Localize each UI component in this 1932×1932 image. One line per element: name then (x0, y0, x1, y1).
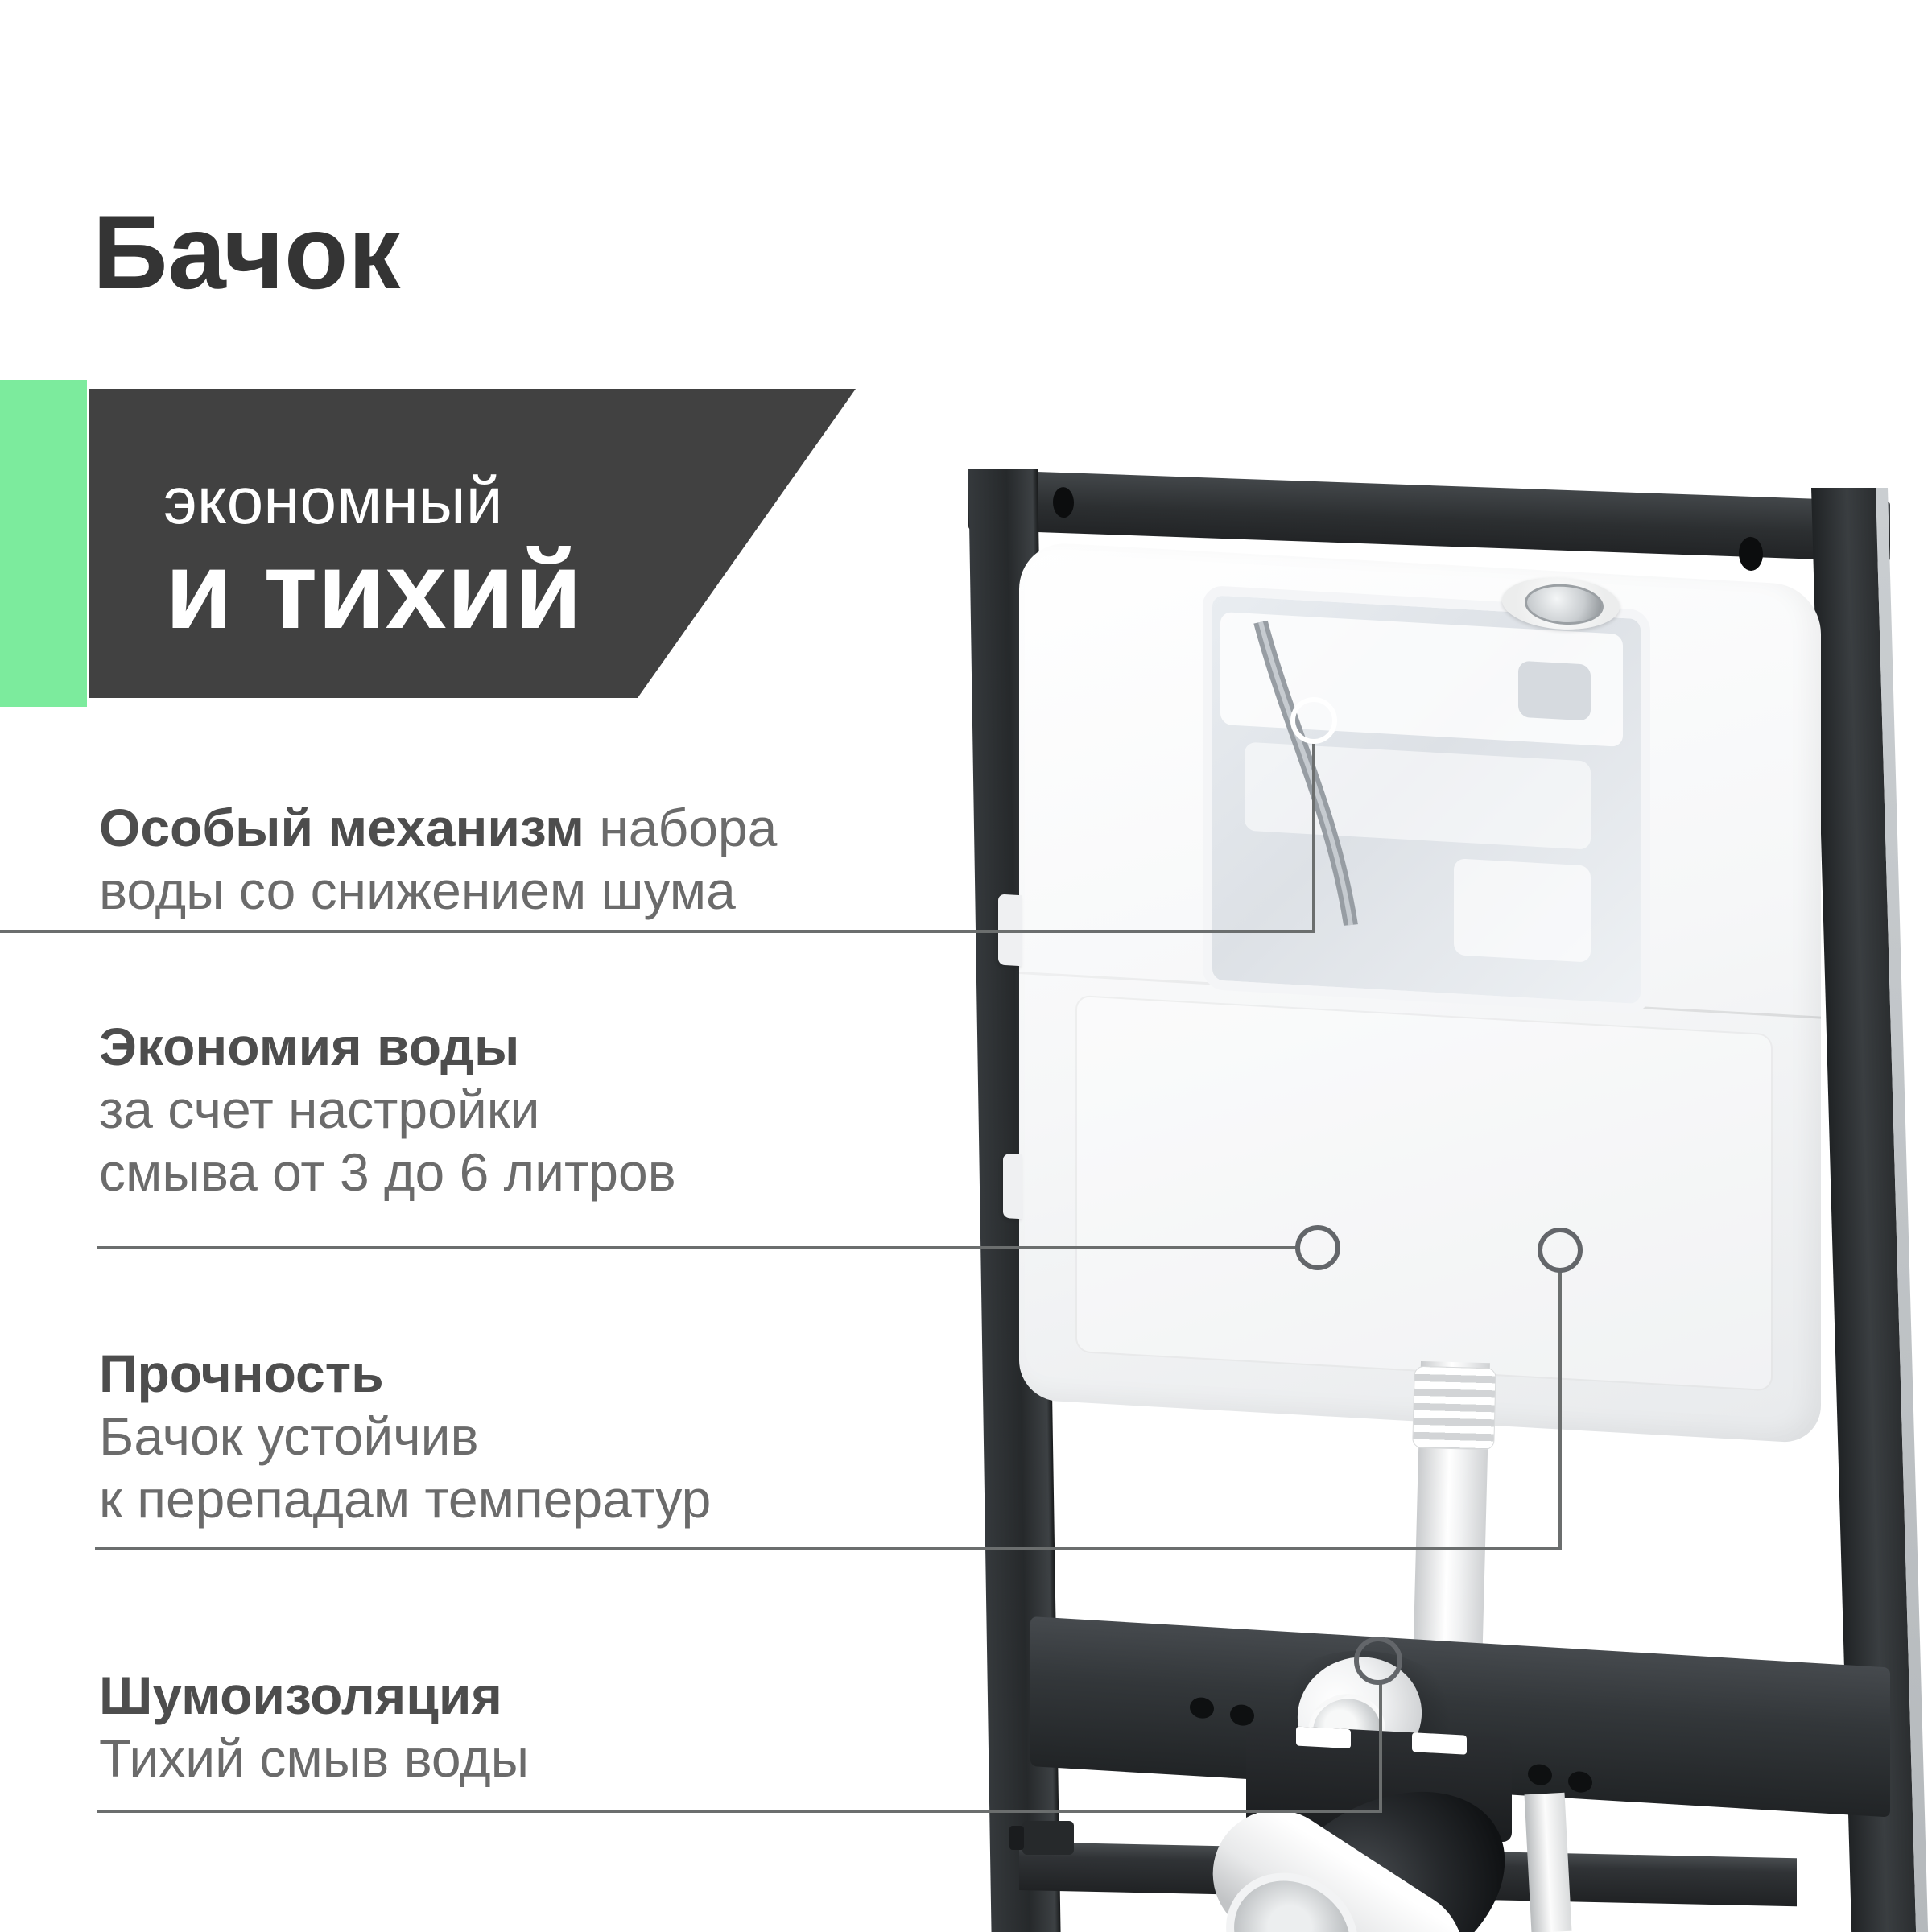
callout-circle-mechanism (1293, 700, 1335, 741)
banner: экономный и тихий (0, 380, 885, 707)
callout-circle-durability (1540, 1230, 1580, 1270)
page-title: Бачок (93, 200, 400, 304)
infographic-canvas: Бачок экономный и тихий Особый механизм … (0, 0, 1932, 1932)
callout-circle-water-saving (1298, 1228, 1338, 1268)
feature-bold-text: Прочность (99, 1344, 384, 1403)
feature-mechanism: Особый механизм набора воды со снижением… (99, 796, 985, 922)
feature-durability: Прочность Бачок устойчив к перепадам тем… (99, 1342, 985, 1530)
feature-tail-text: набора (584, 798, 777, 857)
feature-body-line: за счет настройки (99, 1078, 985, 1141)
feature-water-saving: Экономия воды за счет настройки смыва от… (99, 1015, 985, 1203)
feature-body-line: воды со снижением шума (99, 859, 985, 922)
feature-noise-insulation: Шумоизоляция Тихий смыв воды (99, 1664, 985, 1790)
feature-body-line: к перепадам температур (99, 1468, 985, 1530)
banner-green-accent (0, 380, 87, 707)
feature-bold-text: Особый механизм (99, 798, 584, 857)
feature-title-line: Экономия воды (99, 1015, 985, 1078)
banner-line1: экономный (163, 469, 503, 535)
feature-bold-text: Экономия воды (99, 1017, 519, 1076)
feature-title-line: Особый механизм набора (99, 796, 985, 859)
feature-title-line: Прочность (99, 1342, 985, 1405)
feature-bold-text: Шумоизоляция (99, 1666, 502, 1725)
banner-line2: и тихий (165, 535, 582, 646)
feature-title-line: Шумоизоляция (99, 1664, 985, 1727)
feature-body-line: Тихий смыв воды (99, 1727, 985, 1790)
callout-circle-noise (1356, 1639, 1400, 1682)
feature-body-line: смыва от 3 до 6 литров (99, 1141, 985, 1203)
feature-body-line: Бачок устойчив (99, 1405, 985, 1468)
